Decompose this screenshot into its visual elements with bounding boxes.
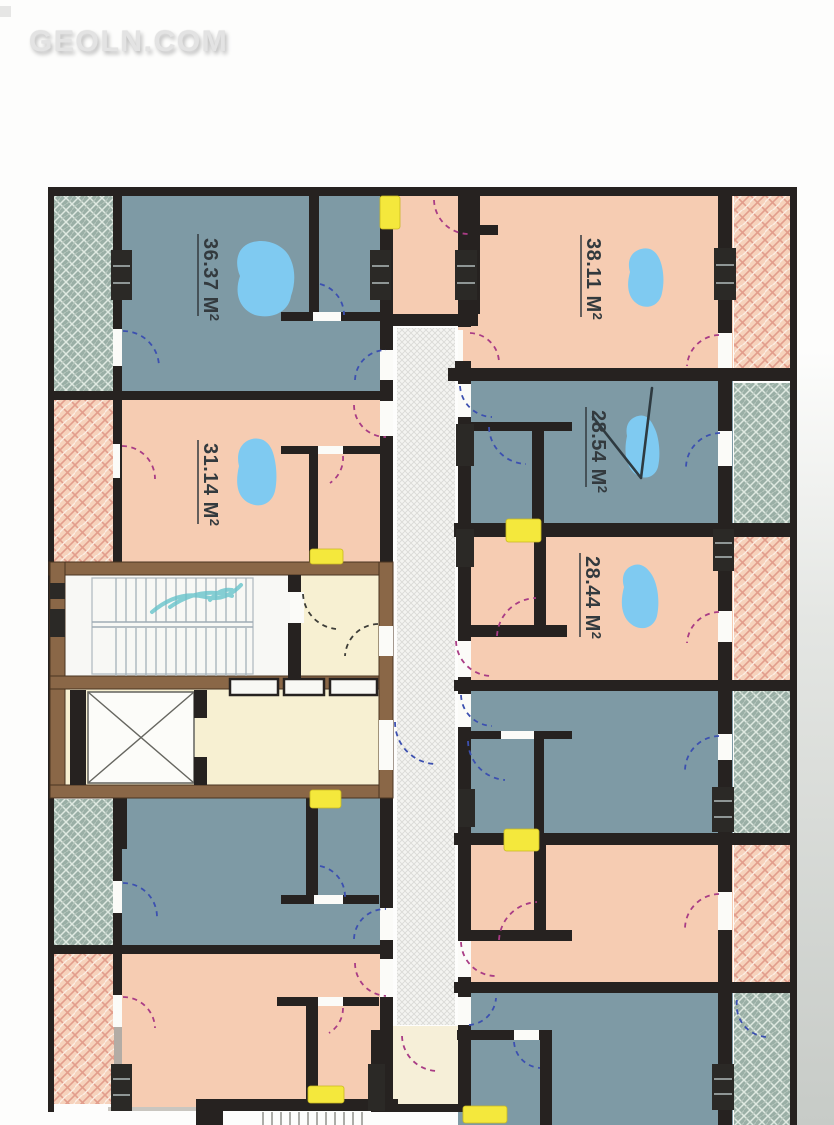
svg-text:31.14 M2: 31.14 M2 [199,443,222,527]
svg-text:28.54 M2: 28.54 M2 [587,410,610,494]
svg-text:36.37 M2: 36.37 M2 [199,238,222,322]
svg-text:38.11 M2: 38.11 M2 [582,238,605,320]
svg-text:28.44 M2: 28.44 M2 [581,556,604,640]
